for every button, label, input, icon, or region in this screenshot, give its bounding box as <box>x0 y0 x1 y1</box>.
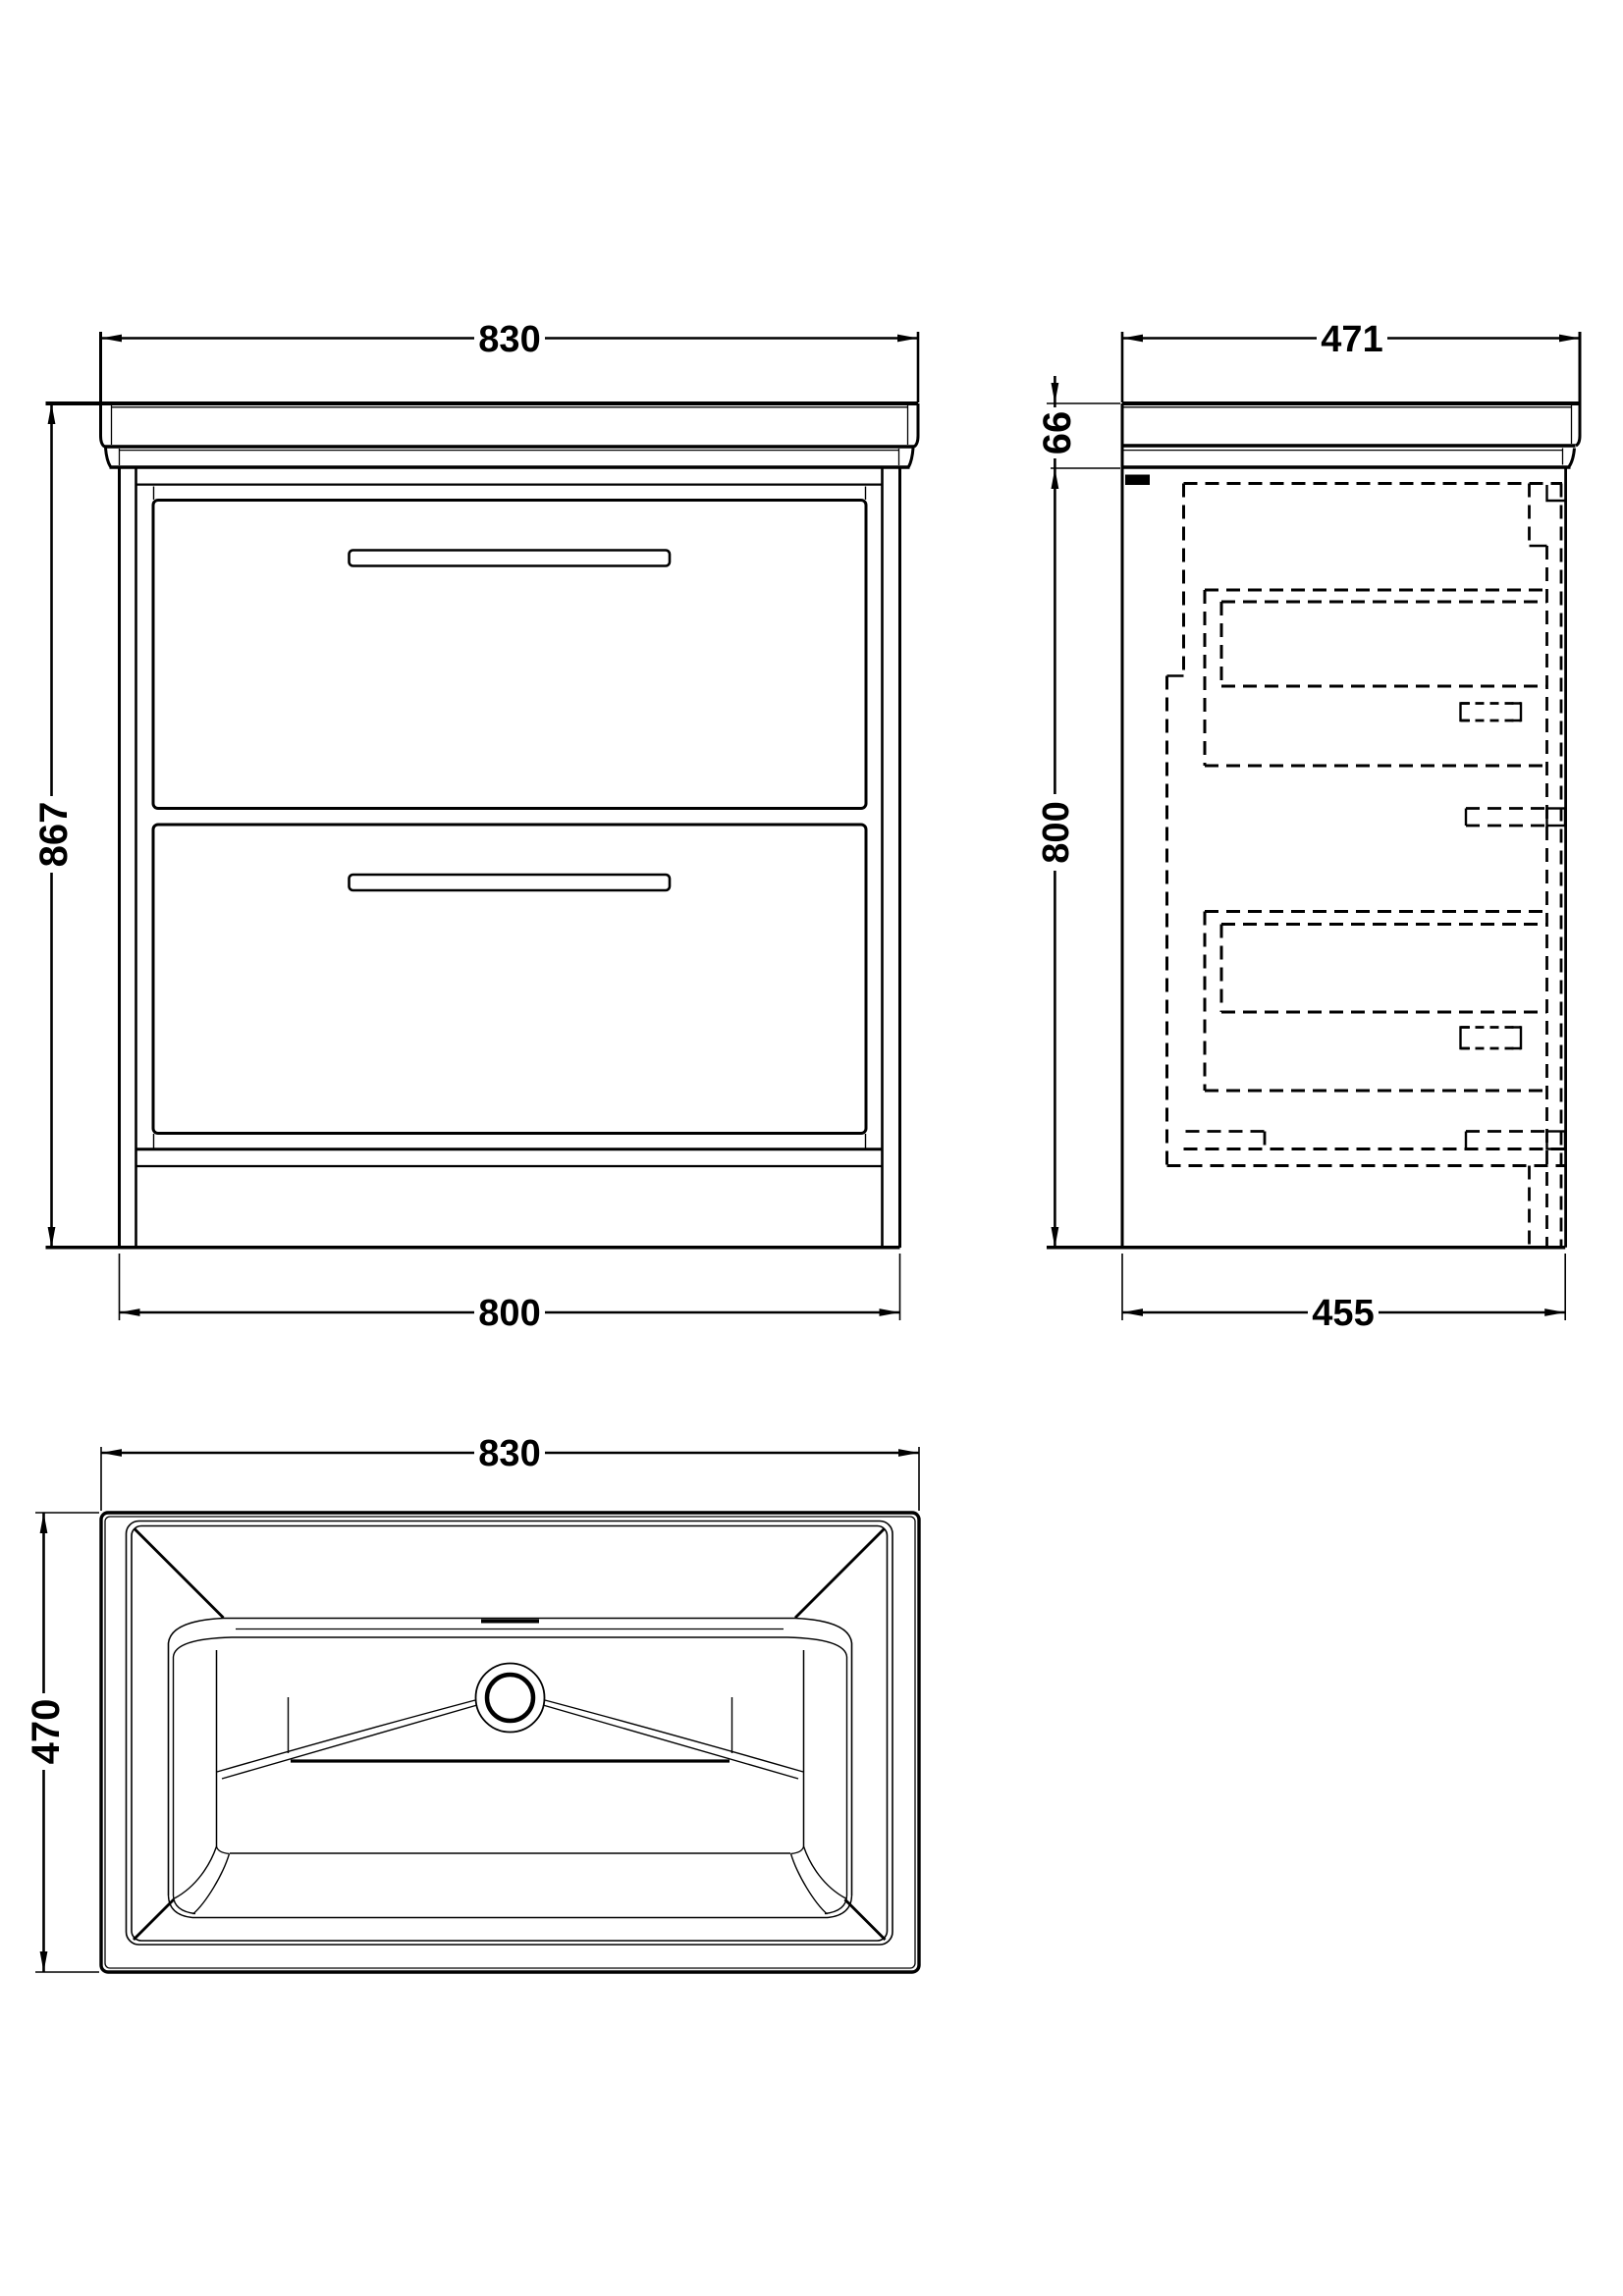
svg-text:830: 830 <box>478 1433 540 1474</box>
svg-text:455: 455 <box>1312 1293 1374 1334</box>
svg-text:800: 800 <box>478 1293 540 1334</box>
svg-text:830: 830 <box>478 319 540 360</box>
svg-text:471: 471 <box>1321 319 1382 360</box>
svg-text:867: 867 <box>32 802 76 868</box>
svg-text:800: 800 <box>1036 801 1077 863</box>
svg-text:66: 66 <box>1036 411 1079 455</box>
svg-text:470: 470 <box>25 1699 68 1765</box>
